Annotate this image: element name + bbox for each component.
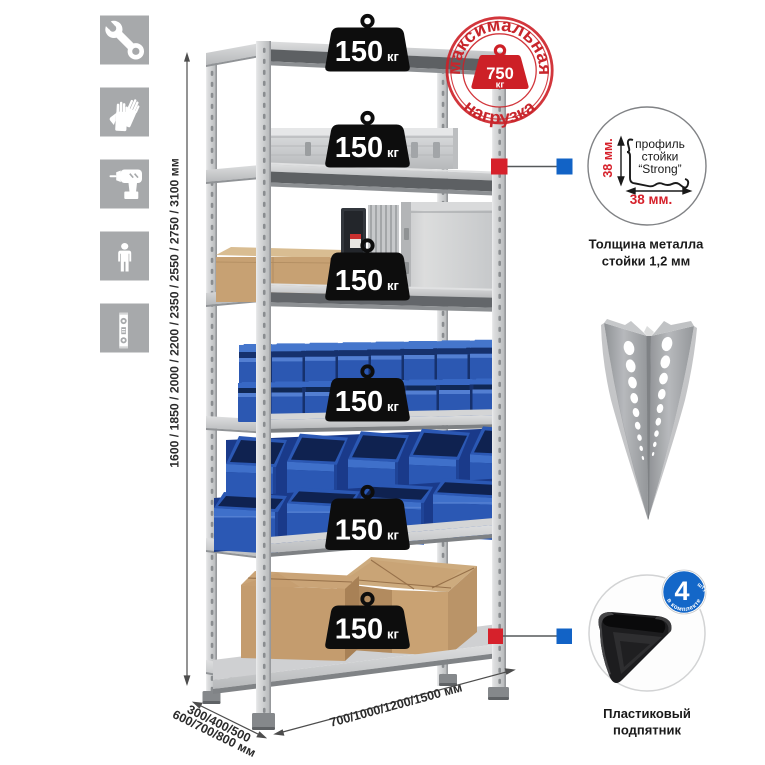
svg-text:кг: кг: [496, 80, 505, 91]
svg-text:Пластиковый: Пластиковый: [603, 706, 691, 721]
svg-text:150: 150: [335, 515, 383, 547]
svg-text:150: 150: [335, 132, 383, 164]
svg-text:38 мм.: 38 мм.: [630, 192, 673, 207]
svg-text:кг: кг: [387, 627, 400, 642]
svg-text:150: 150: [335, 36, 383, 68]
svg-text:стойки 1,2 мм: стойки 1,2 мм: [602, 254, 690, 269]
svg-text:150: 150: [335, 614, 383, 646]
svg-text:кг: кг: [387, 145, 400, 160]
svg-text:150: 150: [335, 265, 383, 297]
svg-text:4: 4: [674, 576, 689, 606]
svg-text:кг: кг: [387, 399, 400, 414]
svg-text:150: 150: [335, 386, 383, 418]
svg-text:кг: кг: [387, 528, 400, 543]
svg-text:1600 / 1850 / 2000 / 2200 / 23: 1600 / 1850 / 2000 / 2200 / 2350 / 2550 …: [168, 158, 182, 467]
svg-text:“Strong”: “Strong”: [638, 162, 681, 176]
svg-text:кг: кг: [387, 49, 400, 64]
svg-text:подпятник: подпятник: [613, 723, 682, 738]
svg-text:Толщина металла: Толщина металла: [589, 237, 704, 252]
svg-text:38 мм.: 38 мм.: [601, 138, 615, 177]
svg-text:кг: кг: [387, 278, 400, 293]
